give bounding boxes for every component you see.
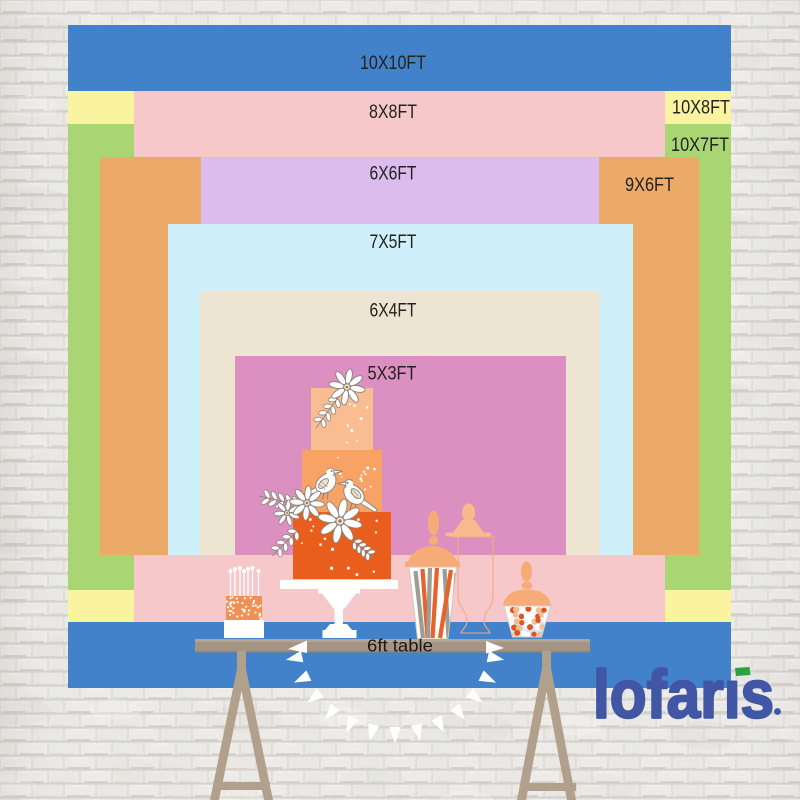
svg-text:6X6FT: 6X6FT — [370, 164, 417, 185]
svg-text:7X5FT: 7X5FT — [370, 232, 417, 253]
svg-text:5X3FT: 5X3FT — [368, 364, 417, 385]
svg-text:10X8FT: 10X8FT — [672, 98, 730, 119]
svg-text:6X4FT: 6X4FT — [370, 301, 417, 322]
svg-text:10X7FT: 10X7FT — [671, 135, 729, 156]
svg-text:9X6FT: 9X6FT — [625, 175, 674, 196]
svg-text:10X10FT: 10X10FT — [360, 53, 426, 74]
svg-text:6ft table: 6ft table — [367, 636, 433, 656]
svg-text:8X8FT: 8X8FT — [369, 102, 417, 123]
